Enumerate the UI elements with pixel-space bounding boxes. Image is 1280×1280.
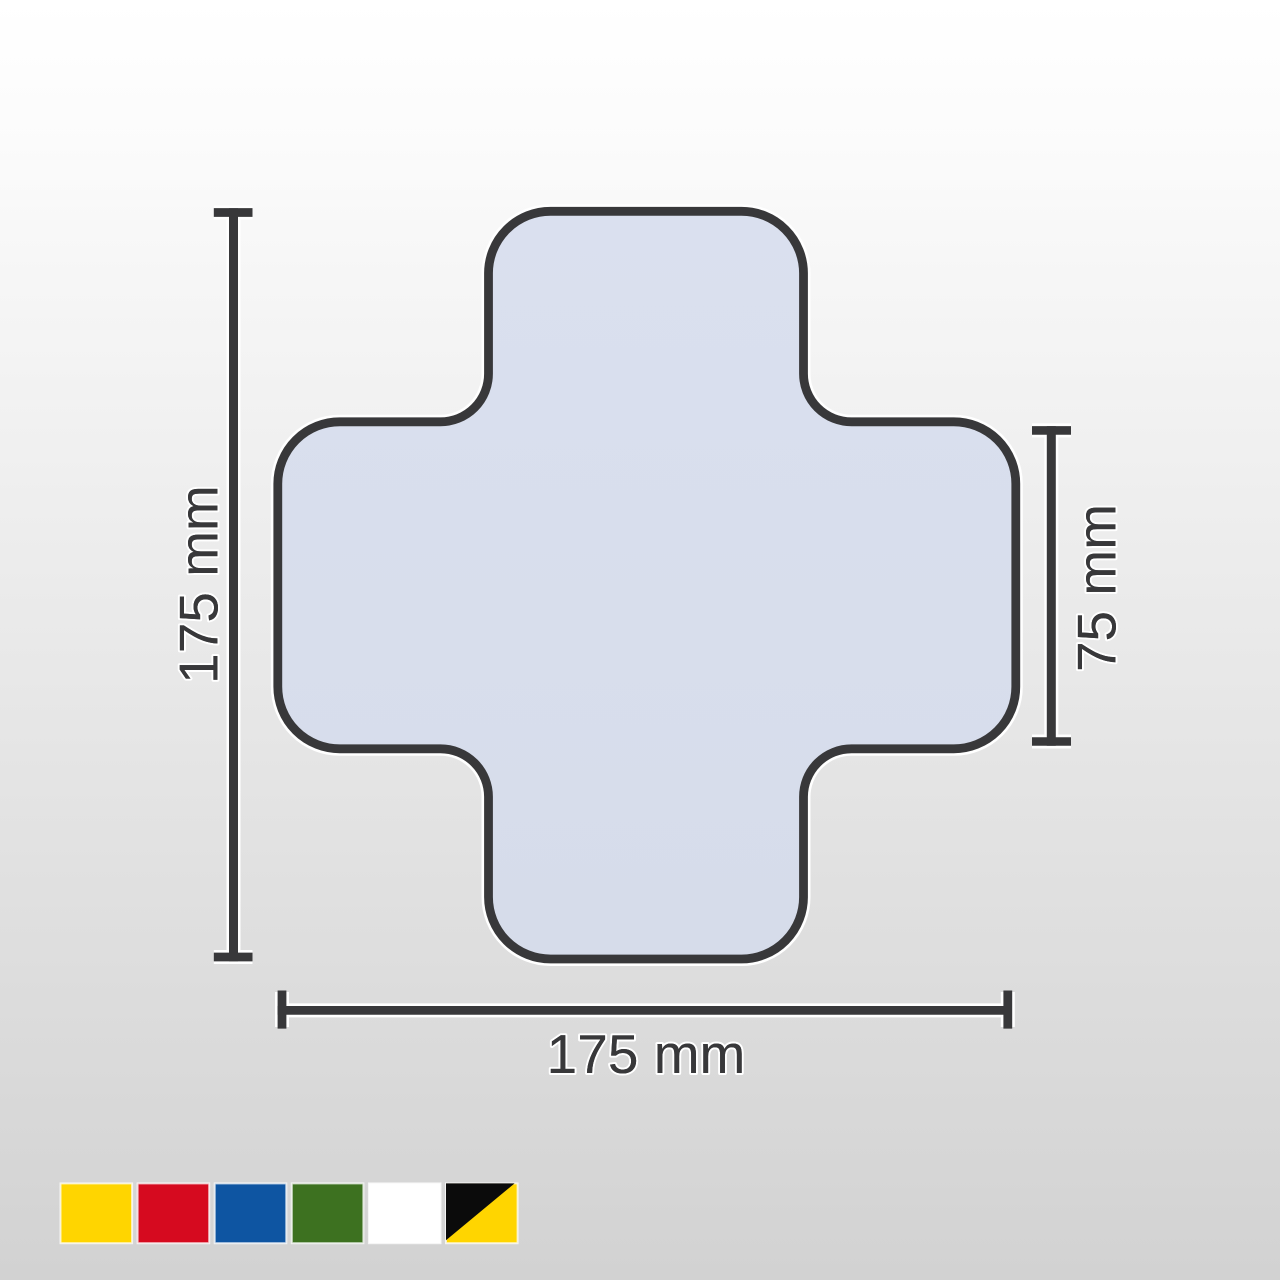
svg-text:175 mm: 175 mm	[168, 485, 230, 684]
svg-text:175 mm: 175 mm	[547, 1023, 746, 1085]
svg-text:75 mm: 75 mm	[1066, 504, 1128, 672]
